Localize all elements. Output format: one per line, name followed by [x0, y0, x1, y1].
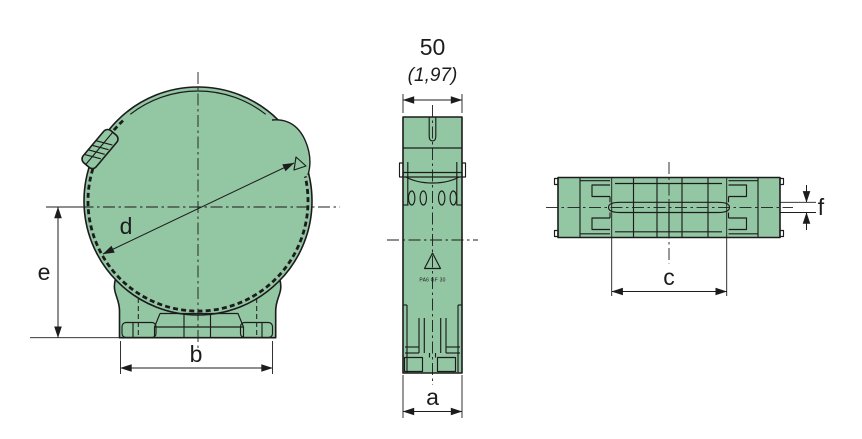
dim-label-d: d — [120, 213, 133, 239]
bottom-view: c f — [546, 162, 825, 296]
dimension-50: 50 (1,97) — [403, 34, 462, 113]
dim-label-f: f — [818, 194, 825, 220]
dim-label-50: 50 — [420, 34, 446, 60]
dim-label-e: e — [38, 259, 51, 285]
dim-label-b: b — [190, 341, 203, 367]
dimension-b: b — [121, 341, 273, 374]
technical-drawing-page: d e b — [0, 0, 862, 439]
side-tab-right — [462, 163, 466, 177]
dim-label-c: c — [663, 264, 675, 290]
front-view: d e b — [30, 72, 340, 374]
dimension-a: a — [403, 375, 462, 418]
side-view: PA6 GF 30 50 (1 — [387, 34, 478, 418]
dim-label-inch: (1,97) — [408, 65, 458, 86]
clamp-technical-drawing: d e b — [0, 0, 862, 439]
dim-label-a: a — [426, 384, 439, 410]
side-tab-left — [400, 163, 404, 177]
